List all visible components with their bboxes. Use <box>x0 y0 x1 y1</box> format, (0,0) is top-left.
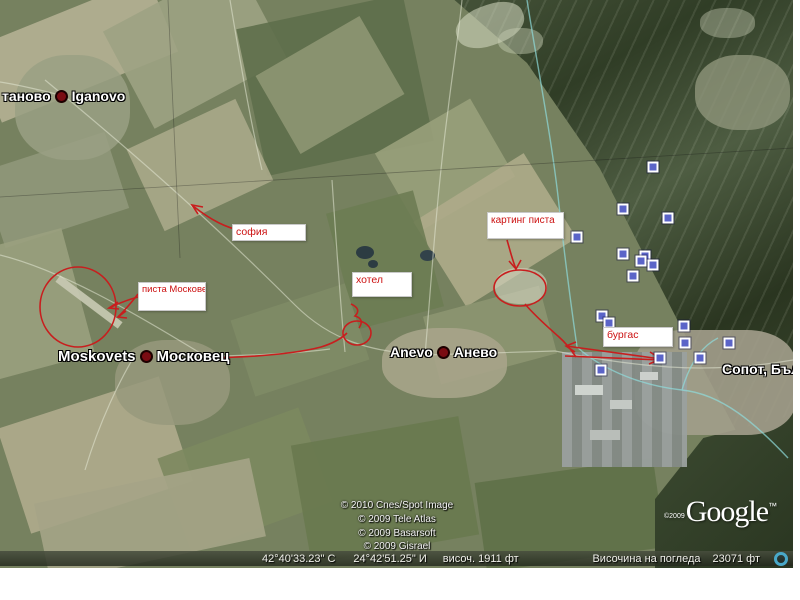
trademark-symbol: ™ <box>768 501 777 511</box>
copyright-line: © 2009 Basarsoft <box>322 527 472 541</box>
town-dot-icon <box>437 346 450 359</box>
copyright-line: © 2010 Cnes/Spot Image <box>322 499 472 513</box>
placemark-icon[interactable] <box>618 249 629 260</box>
placemark-icon[interactable] <box>679 321 690 332</box>
annotation-label: писта Московец <box>142 284 206 295</box>
google-logo: Google <box>686 497 768 527</box>
town-dot-icon <box>140 350 153 363</box>
town-label-iganovo: таново Iganovo <box>2 88 125 104</box>
placemark-icon[interactable] <box>724 338 735 349</box>
status-eye-altitude-label: Височина на погледа <box>592 553 700 565</box>
status-bar: 42°40'33.23" С 24°42'51.25" И височ. 191… <box>0 551 793 566</box>
placemark-icon[interactable] <box>655 353 666 364</box>
status-longitude: 24°42'51.25" И <box>353 553 426 565</box>
placemark-icon[interactable] <box>695 353 706 364</box>
annotation-box-hotel[interactable]: хотел <box>352 272 412 297</box>
town-label-anevo: Anevo Анево <box>390 344 497 360</box>
placemark-icon[interactable] <box>618 204 629 215</box>
annotation-box-karting[interactable]: картинг писта <box>487 212 564 239</box>
town-label-text: Iganovo <box>72 88 126 104</box>
annotation-label: бургас <box>607 329 638 341</box>
copyright-line: © 2009 Tele Atlas <box>322 513 472 527</box>
placemark-icon[interactable] <box>680 338 691 349</box>
placemark-icon[interactable] <box>663 213 674 224</box>
town-label-text: Сопот, Бъл <box>722 361 793 377</box>
copyright-attribution: © 2010 Cnes/Spot Image © 2009 Tele Atlas… <box>322 499 472 554</box>
status-latitude: 42°40'33.23" С <box>262 553 335 565</box>
placemark-icon[interactable] <box>648 162 659 173</box>
town-label-moskovets: Moskovets Московец <box>58 348 229 365</box>
map-viewport[interactable]: таново Iganovo Moskovets Московец Anevo … <box>0 0 793 568</box>
placemark-icon[interactable] <box>628 271 639 282</box>
google-watermark-copyright: ©2009 <box>664 513 685 520</box>
placemark-icon[interactable] <box>572 232 583 243</box>
status-elevation: височ. 1911 фт <box>443 553 519 565</box>
annotation-box-pista-moskovets[interactable]: писта Московец <box>138 282 206 311</box>
placemark-icon[interactable] <box>636 256 647 267</box>
status-eye-altitude-value: 23071 фт <box>713 553 761 565</box>
annotation-label: картинг писта <box>491 215 555 226</box>
annotation-label: хотел <box>356 274 383 286</box>
town-label-text: Moskovets <box>58 348 136 365</box>
annotation-box-sofia[interactable]: софия <box>232 224 306 241</box>
google-watermark: ©2009 Google ™ <box>664 497 777 527</box>
streaming-indicator-icon <box>774 552 788 566</box>
annotation-label: софия <box>236 226 267 238</box>
annotation-box-burgas[interactable]: бургас <box>603 327 673 347</box>
placemark-icon[interactable] <box>596 365 607 376</box>
town-label-text: Anevo <box>390 344 433 360</box>
town-label-text: Московец <box>157 348 230 365</box>
town-label-text: таново <box>2 88 51 104</box>
placemark-icon[interactable] <box>648 260 659 271</box>
town-dot-icon <box>55 90 68 103</box>
town-label-text: Анево <box>454 344 497 360</box>
town-label-sopot: Сопот, Бъл <box>722 361 793 377</box>
